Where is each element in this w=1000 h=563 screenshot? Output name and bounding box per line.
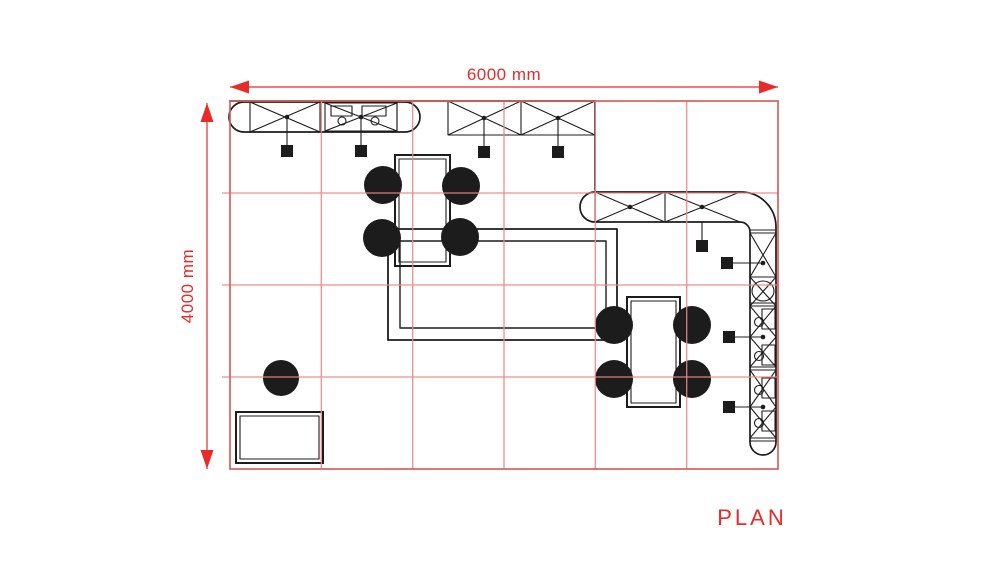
dining-table-1 bbox=[395, 155, 450, 266]
light-fixture bbox=[723, 401, 735, 413]
sink-basin bbox=[362, 106, 386, 116]
light-fixture bbox=[723, 331, 735, 343]
horizontal-dimension-label: 6000 mm bbox=[467, 65, 541, 84]
top-counter bbox=[229, 102, 420, 132]
arrowhead-right-icon bbox=[759, 81, 778, 94]
chair bbox=[363, 219, 401, 257]
chair bbox=[263, 360, 299, 396]
sink-basin bbox=[331, 106, 352, 116]
dining-table-2 bbox=[627, 297, 680, 407]
chair bbox=[441, 218, 479, 256]
wall-lights bbox=[721, 257, 763, 413]
arrowhead-left-icon bbox=[230, 81, 249, 94]
chair bbox=[364, 166, 402, 204]
vertical-dimension: 4000 mm bbox=[178, 103, 214, 469]
floor-plan-page: 6000 mm 4000 mm PLAN bbox=[0, 0, 1000, 563]
truss-canopy bbox=[448, 101, 595, 135]
light-fixture bbox=[281, 145, 293, 157]
low-table bbox=[236, 412, 323, 463]
arrowhead-up-icon bbox=[201, 103, 214, 122]
walls-and-furniture bbox=[229, 101, 776, 463]
light-fixture bbox=[355, 145, 367, 157]
pendant-lights bbox=[281, 117, 708, 252]
horizontal-dimension: 6000 mm bbox=[230, 65, 778, 94]
light-fixture bbox=[478, 146, 490, 158]
arrowhead-down-icon bbox=[201, 450, 214, 469]
light-fixture bbox=[721, 257, 733, 269]
floor-plan-drawing: 6000 mm 4000 mm PLAN bbox=[0, 0, 1000, 563]
light-fixture bbox=[552, 146, 564, 158]
layout-grid bbox=[222, 101, 778, 469]
chair bbox=[595, 306, 633, 344]
light-fixture bbox=[696, 240, 708, 252]
chair bbox=[673, 360, 711, 398]
vertical-dimension-label: 4000 mm bbox=[178, 249, 197, 323]
plan-title-label: PLAN bbox=[717, 505, 786, 530]
chair bbox=[595, 360, 633, 398]
chair bbox=[673, 306, 711, 344]
chair bbox=[442, 167, 480, 205]
